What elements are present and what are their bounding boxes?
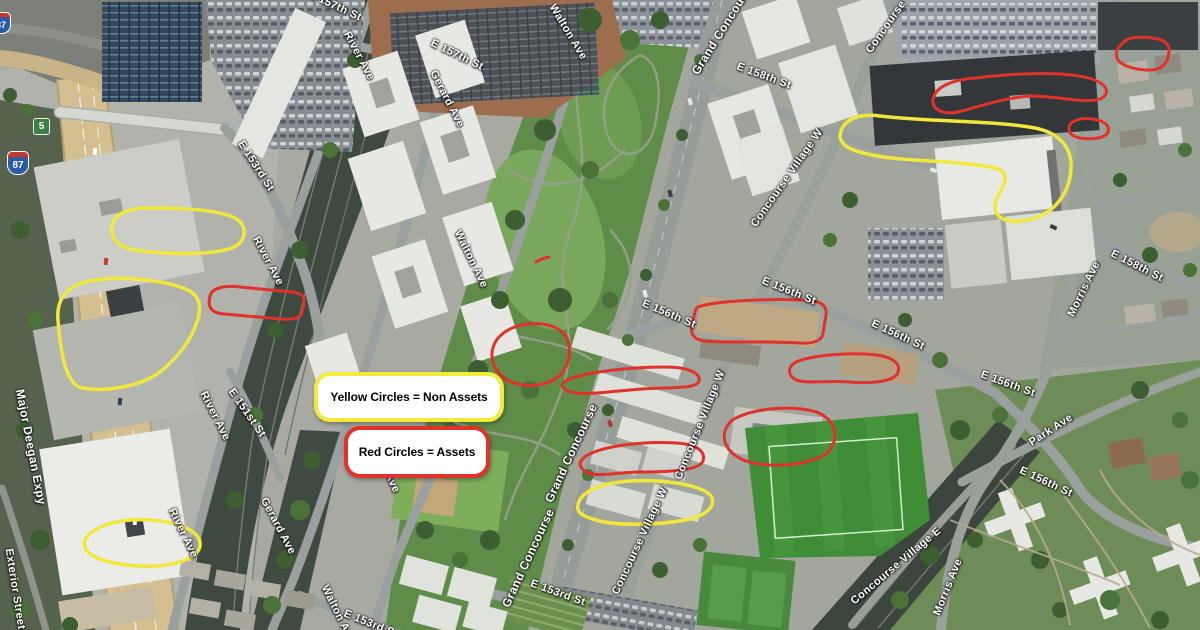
asset-circle: [692, 300, 827, 344]
asset-circle: [492, 324, 569, 386]
asset-circle: [1069, 118, 1108, 138]
map-canvas[interactable]: E 157th St River Ave E 157th St Gerard A…: [0, 0, 1200, 630]
asset-circle: [789, 354, 898, 383]
asset-circle: [724, 408, 834, 465]
interstate-87-shield: 87: [7, 151, 29, 175]
non-asset-circle: [840, 115, 1071, 221]
legend-non-assets: Yellow Circles = Non Assets: [314, 372, 504, 422]
asset-mark: [536, 257, 549, 262]
asset-circle: [209, 286, 304, 319]
non-asset-circle: [58, 278, 200, 389]
legend-assets-label: Red Circles = Assets: [359, 445, 476, 459]
non-asset-circle: [112, 208, 245, 254]
asset-circle: [1116, 37, 1169, 70]
legend-assets: Red Circles = Assets: [344, 426, 490, 478]
asset-circle: [933, 74, 1107, 113]
legend-non-assets-label: Yellow Circles = Non Assets: [330, 390, 487, 404]
asset-circle: [562, 367, 699, 394]
route-5-shield: 5: [33, 118, 50, 135]
